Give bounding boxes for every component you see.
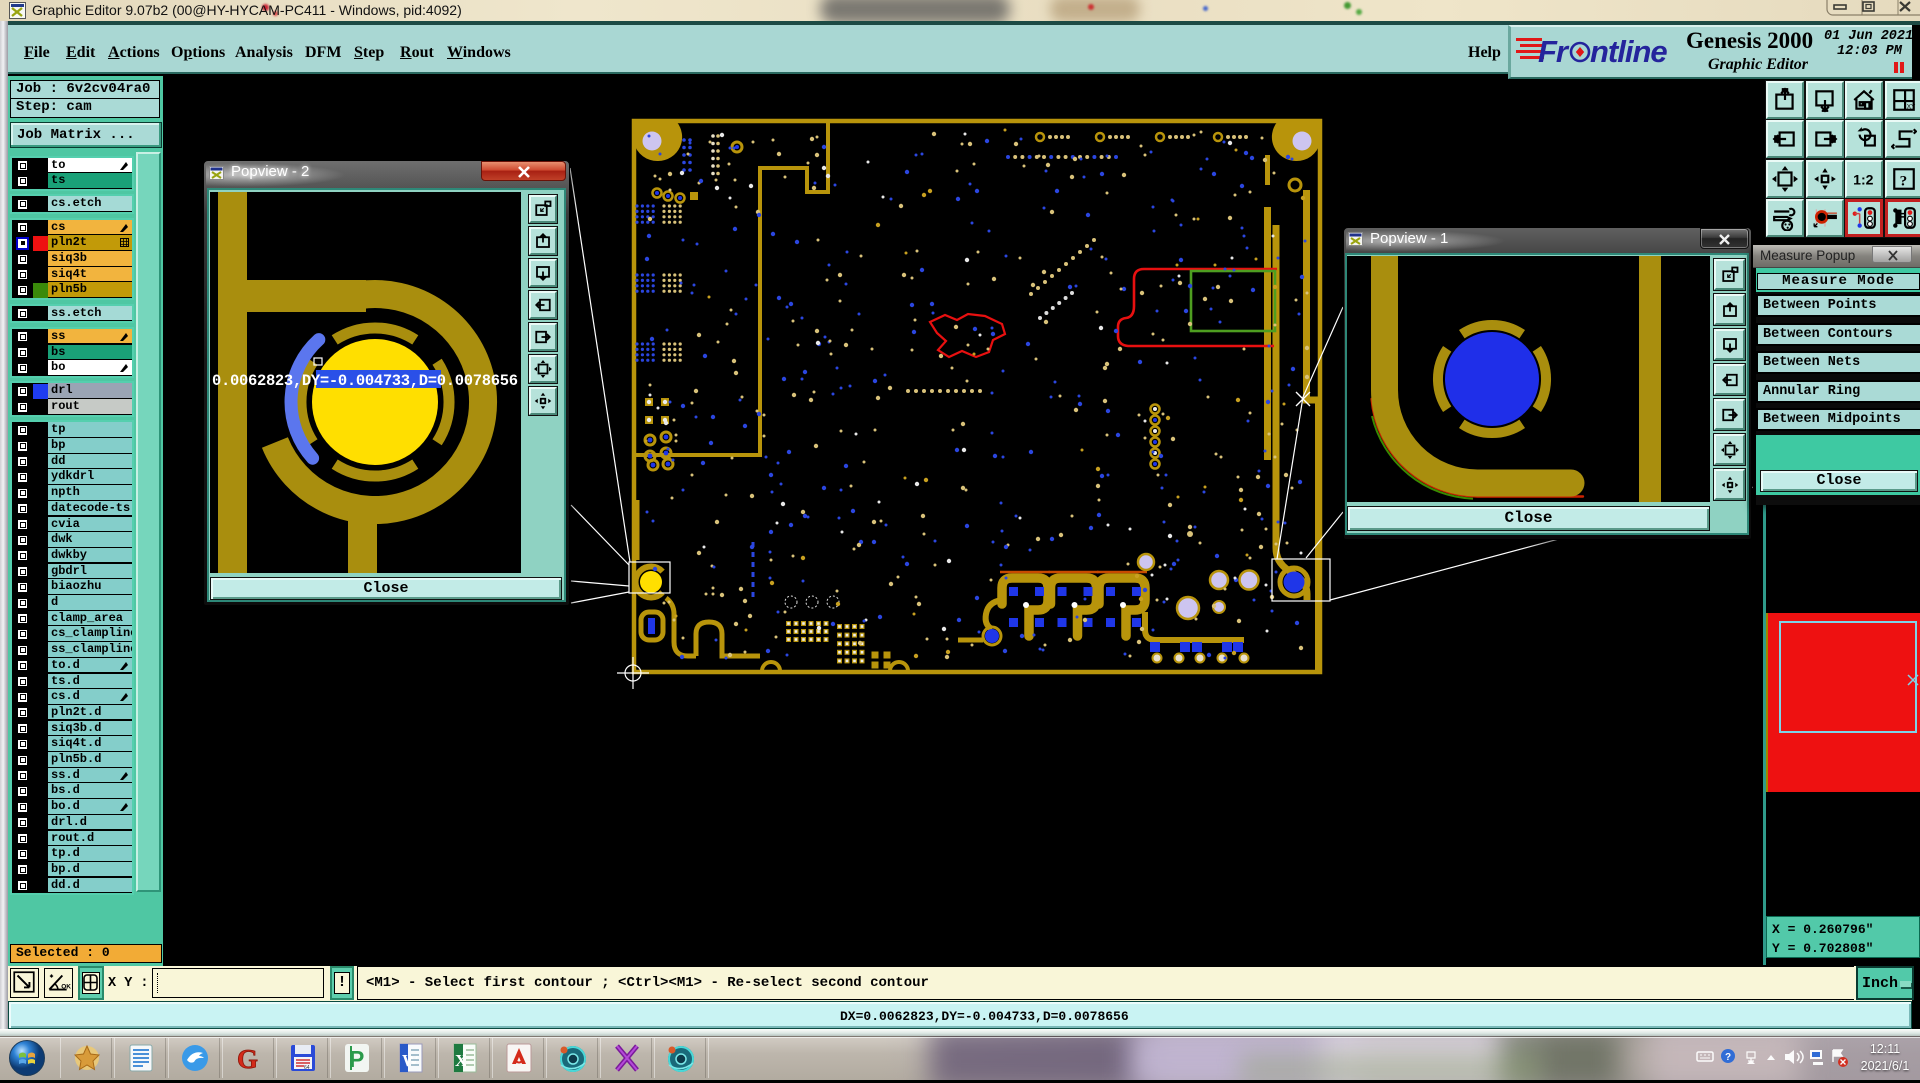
svg-text:?: ? bbox=[1899, 172, 1907, 189]
svg-text:Fr: Fr bbox=[1538, 34, 1570, 69]
svg-text:OK: OK bbox=[61, 984, 71, 991]
svg-text:XY: XY bbox=[1906, 103, 1915, 110]
svg-text:0.0062823,DY=-0.004733,D=0.007: 0.0062823,DY=-0.004733,D=0.0078656 bbox=[212, 372, 518, 390]
svg-text:?: ? bbox=[1725, 1052, 1731, 1063]
svg-text:64: 64 bbox=[304, 1065, 310, 1071]
svg-text:G: G bbox=[237, 1044, 258, 1074]
svg-text:1:2: 1:2 bbox=[1853, 171, 1874, 187]
svg-text:ntline: ntline bbox=[1590, 34, 1667, 69]
